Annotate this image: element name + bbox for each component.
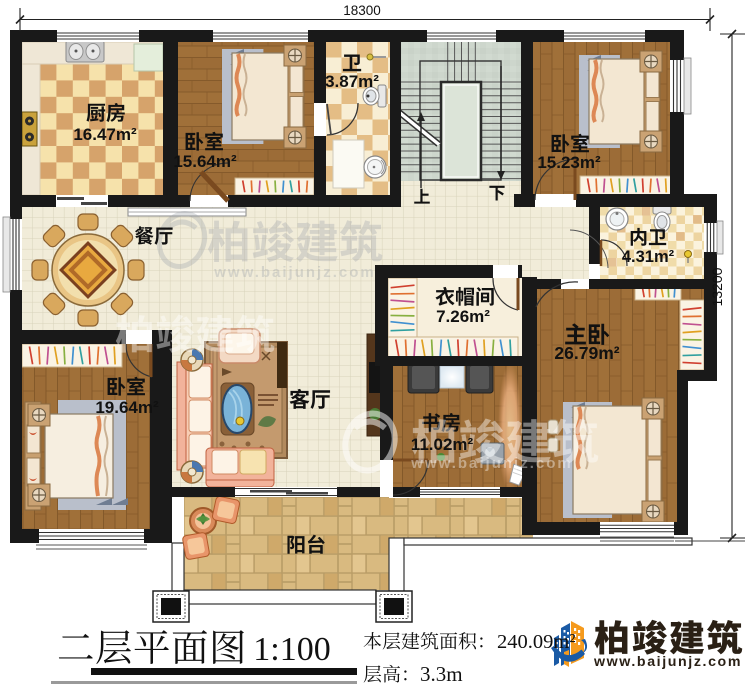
svg-text:www.baijunjz.com: www.baijunjz.com [593, 654, 742, 670]
svg-text:26.79m²: 26.79m² [554, 343, 619, 363]
svg-text:240.09m²: 240.09m² [497, 631, 575, 653]
svg-text:13200: 13200 [709, 267, 725, 306]
svg-text:4.31m²: 4.31m² [622, 248, 675, 266]
svg-text:11.02m²: 11.02m² [411, 435, 474, 454]
svg-text:18300: 18300 [343, 3, 381, 18]
svg-text:3.87m²: 3.87m² [325, 72, 379, 91]
svg-text:15.64m²: 15.64m² [173, 152, 237, 171]
svg-text:1:100: 1:100 [253, 631, 330, 668]
svg-text:3.3m: 3.3m [420, 662, 463, 686]
svg-text:16.47m²: 16.47m² [73, 125, 137, 144]
svg-text:www.baijunjz.com: www.baijunjz.com [410, 455, 572, 472]
svg-text:www.baijunjz.com: www.baijunjz.com [213, 264, 375, 281]
svg-text:15.23m²: 15.23m² [537, 153, 601, 172]
svg-text:7.26m²: 7.26m² [436, 307, 490, 326]
svg-text:19.64m²: 19.64m² [95, 398, 159, 417]
